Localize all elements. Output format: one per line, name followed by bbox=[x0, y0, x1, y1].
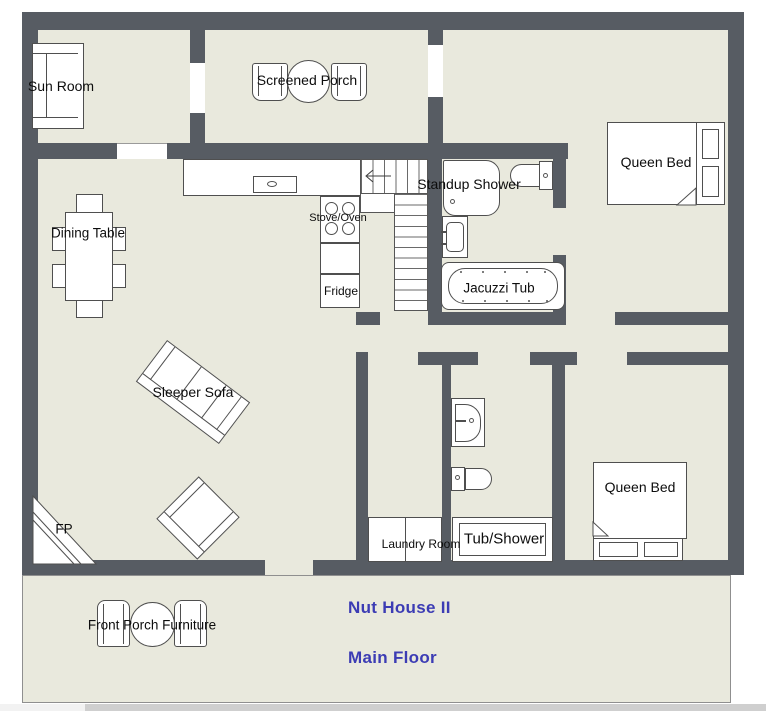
wall-segment bbox=[442, 365, 451, 560]
wall-segment bbox=[356, 312, 380, 325]
dining-chair bbox=[112, 264, 126, 288]
vanity-basin bbox=[455, 404, 481, 442]
label-stove-oven: Stove/Oven bbox=[309, 212, 366, 224]
sofa-line bbox=[33, 117, 78, 118]
kitchen-counter-lower bbox=[320, 243, 360, 274]
bed-sheet-fold bbox=[592, 521, 610, 538]
label-laundry-room: Laundry Room bbox=[382, 537, 461, 551]
bed-pillow bbox=[702, 166, 719, 197]
wall-segment bbox=[22, 12, 744, 30]
floor-plan: Sun Room Screened Porch Queen Bed Standu… bbox=[0, 0, 766, 711]
plan-floor-title: Main Floor bbox=[348, 648, 437, 668]
bed-pillow bbox=[599, 542, 638, 557]
vanity-faucet bbox=[456, 420, 466, 422]
jacuzzi-jet bbox=[526, 271, 528, 273]
chair-arm-line bbox=[360, 66, 361, 96]
stairs-landing bbox=[360, 193, 395, 213]
horizontal-scrollbar[interactable] bbox=[85, 704, 766, 711]
wall-segment bbox=[428, 30, 443, 45]
vanity-faucet bbox=[441, 243, 446, 245]
dining-chair bbox=[76, 300, 103, 318]
jacuzzi-jet bbox=[546, 300, 548, 302]
jacuzzi-jet bbox=[462, 300, 464, 302]
wall-segment bbox=[356, 352, 368, 365]
wall-segment bbox=[418, 352, 478, 365]
dining-chair bbox=[52, 264, 66, 288]
stairs-lower-run bbox=[394, 193, 428, 311]
wall-segment bbox=[552, 365, 565, 560]
bed-pillow bbox=[644, 542, 678, 557]
toilet-flush-button bbox=[455, 475, 460, 480]
wall-segment bbox=[313, 560, 728, 575]
wall-segment bbox=[167, 143, 568, 159]
plan-title: Nut House II bbox=[348, 598, 451, 618]
label-front-porch: Front Porch Furniture bbox=[88, 618, 216, 633]
jacuzzi-jet bbox=[460, 271, 462, 273]
jacuzzi-jet bbox=[504, 271, 506, 273]
door-opening bbox=[190, 63, 205, 113]
wall-segment bbox=[356, 365, 368, 560]
stairs-direction-arrow bbox=[361, 160, 395, 193]
shower-drain bbox=[450, 199, 455, 204]
vanity-faucet bbox=[441, 231, 446, 233]
bed-pillow bbox=[702, 129, 719, 159]
jacuzzi-jet bbox=[482, 271, 484, 273]
jacuzzi-jet bbox=[506, 300, 508, 302]
jacuzzi-jet bbox=[544, 271, 546, 273]
scrollbar-track-left[interactable] bbox=[0, 704, 85, 711]
label-tub-shower: Tub/Shower bbox=[464, 531, 544, 548]
wall-segment bbox=[615, 312, 728, 325]
sink-faucet bbox=[267, 181, 277, 187]
label-fridge: Fridge bbox=[324, 284, 358, 298]
door-opening bbox=[428, 45, 443, 97]
vanity-drain bbox=[469, 418, 474, 423]
jacuzzi-jet bbox=[528, 300, 530, 302]
label-standup-shower: Standup Shower bbox=[417, 176, 521, 192]
wall-segment bbox=[530, 352, 577, 365]
jacuzzi-jet bbox=[484, 300, 486, 302]
toilet-bowl bbox=[465, 468, 492, 490]
label-fireplace: FP bbox=[55, 522, 72, 537]
wall-segment bbox=[190, 30, 205, 63]
label-screened-porch: Screened Porch bbox=[257, 72, 357, 88]
label-jacuzzi-tub: Jacuzzi Tub bbox=[463, 281, 534, 296]
label-sun-room: Sun Room bbox=[28, 78, 94, 94]
wall-segment bbox=[38, 143, 117, 159]
label-sleeper-sofa: Sleeper Sofa bbox=[153, 384, 234, 400]
bed-sheet-fold bbox=[675, 186, 698, 207]
dining-chair bbox=[76, 194, 103, 213]
wall-segment bbox=[553, 159, 566, 208]
label-queen-bed-top: Queen Bed bbox=[621, 154, 692, 170]
door-opening bbox=[117, 143, 167, 159]
wall-segment bbox=[728, 30, 744, 575]
toilet-flush-button bbox=[543, 173, 548, 178]
vanity-basin bbox=[446, 222, 464, 252]
label-queen-bed-bottom: Queen Bed bbox=[605, 479, 676, 495]
sofa-line bbox=[33, 53, 78, 54]
label-dining-table: Dining Table bbox=[51, 226, 125, 241]
wall-segment bbox=[627, 352, 728, 365]
wall-segment bbox=[428, 312, 566, 325]
